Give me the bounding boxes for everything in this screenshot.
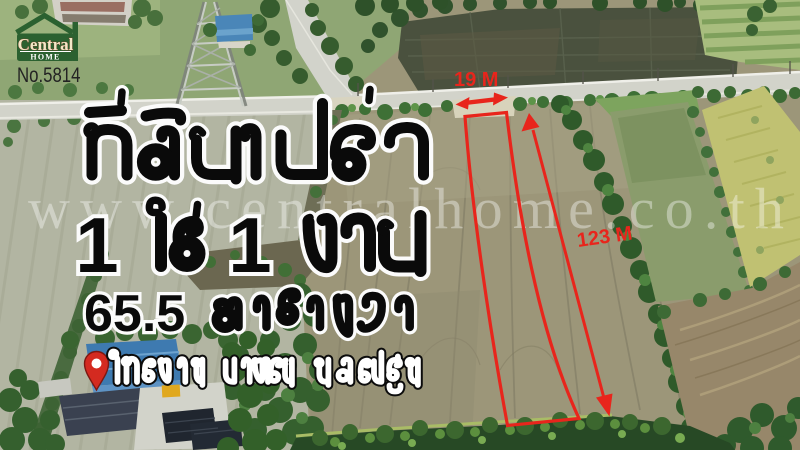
- svg-text:19 M: 19 M: [454, 69, 498, 91]
- svg-text:1: 1: [75, 201, 118, 289]
- svg-text:65.5: 65.5: [84, 285, 185, 343]
- svg-text:1: 1: [228, 201, 271, 289]
- svg-text:HOME: HOME: [30, 53, 60, 62]
- svg-text:No.5814: No.5814: [17, 64, 81, 87]
